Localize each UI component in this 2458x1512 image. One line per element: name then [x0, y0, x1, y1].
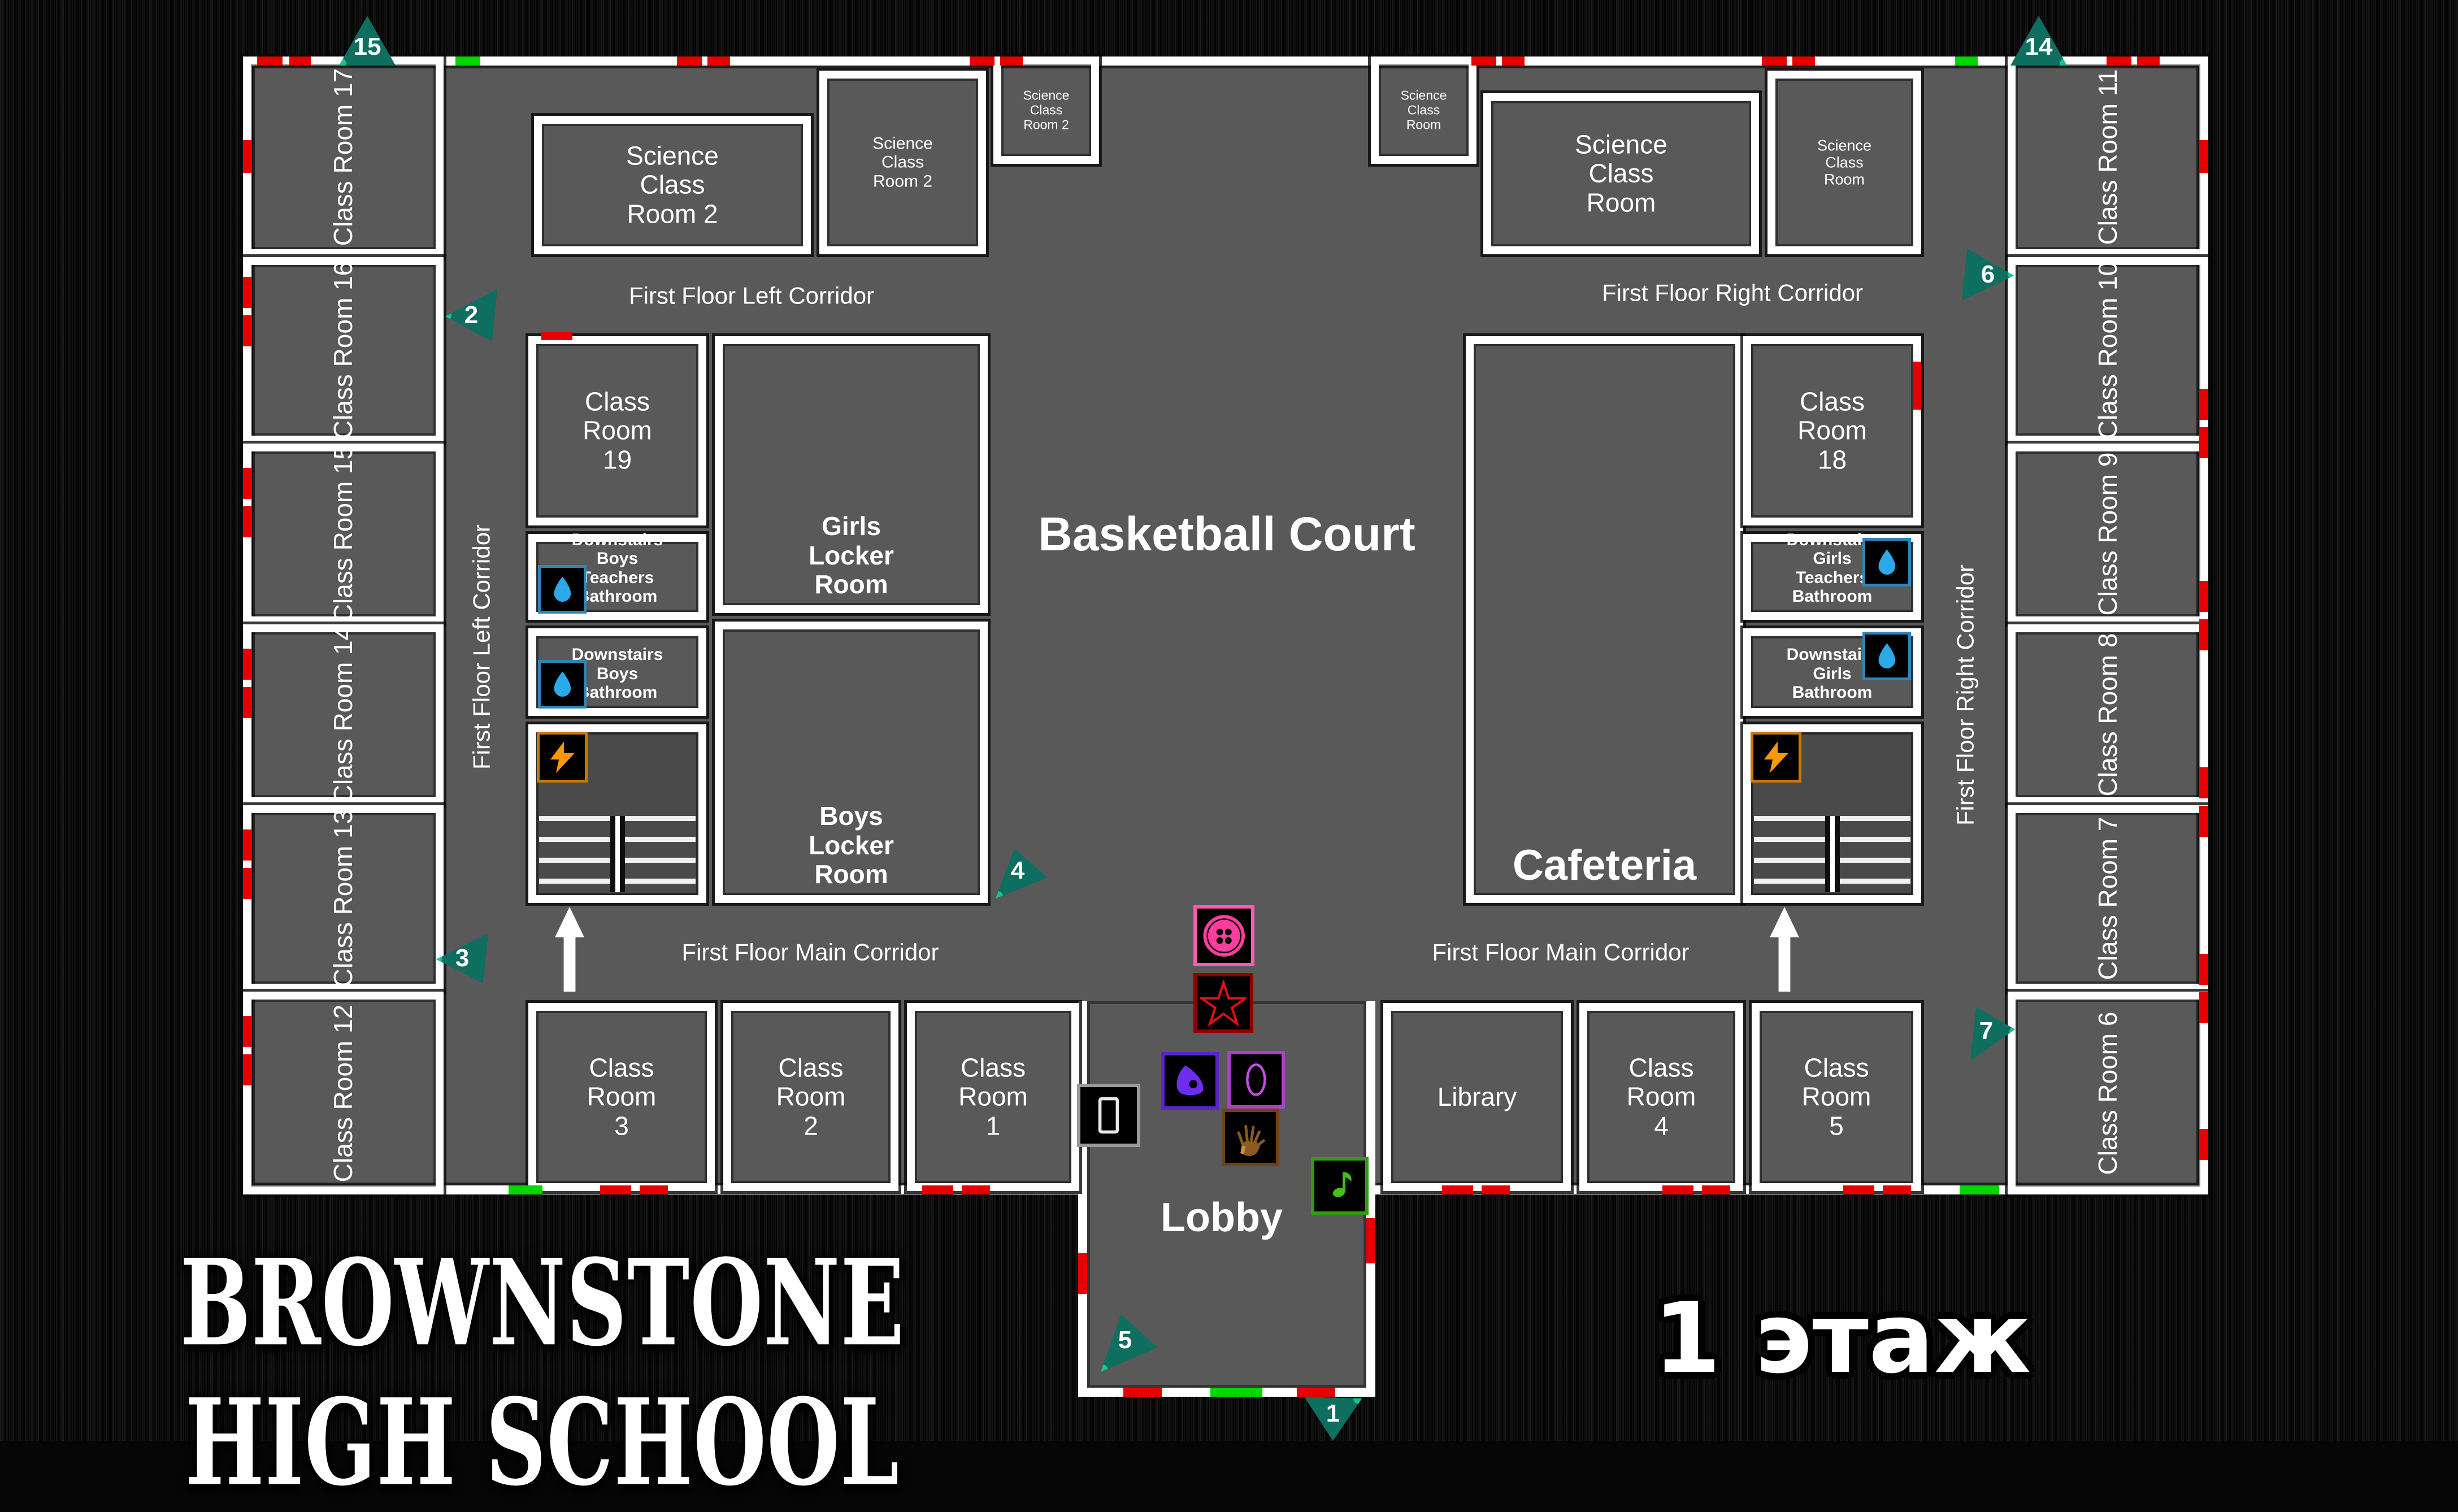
music-note-icon — [1311, 1157, 1369, 1215]
door-mark — [600, 1185, 631, 1194]
room-label: Class Room 10 — [2094, 262, 2123, 439]
room-science-class-room-2: Science Class Room 2 — [534, 116, 811, 254]
stair-treads — [539, 816, 696, 892]
stair-rail — [610, 816, 625, 892]
room-class-room-6: Class Room 6 — [2008, 992, 2208, 1194]
room-cafeteria: Cafeteria — [1466, 336, 1743, 903]
door-mark — [1702, 1185, 1730, 1194]
floor-plan: Class Room 17Class Room 16Class Room 15C… — [0, 0, 2458, 1441]
room-label: Class Room 16 — [329, 262, 358, 439]
room-label: Class Room 3 — [579, 1053, 665, 1141]
marker-number: 6 — [1981, 260, 1995, 289]
room-label: Science Class Room 2 — [1023, 88, 1070, 132]
door-mark — [289, 57, 311, 66]
door-mark — [1442, 1185, 1473, 1194]
room-class-room-19: Class Room 19 — [528, 336, 706, 525]
room-class-room-2: Class Room 2 — [723, 1003, 898, 1191]
door-mark — [243, 506, 252, 537]
door-mark — [1502, 57, 1525, 66]
game-title: BROWNSTONE HIGH SCHOOL — [34, 1233, 1051, 1512]
door-mark — [2107, 57, 2131, 66]
room-label: Class Room 15 — [329, 445, 358, 623]
room-label: Class Room 14 — [329, 626, 358, 803]
door-mark — [1123, 1388, 1162, 1397]
water-drop-icon — [538, 565, 587, 614]
marker-number: 15 — [354, 20, 381, 61]
room-class-room-11: Class Room 11 — [2008, 57, 2208, 257]
corridor-label: First Floor Main Corridor — [1432, 939, 1689, 965]
marker-number: 1 — [1326, 1400, 1340, 1438]
room-class-room-5: Class Room 5 — [1752, 1003, 1921, 1191]
door-mark — [970, 57, 995, 66]
room-label: Boys Locker Room — [787, 802, 916, 889]
planchette-icon — [1161, 1052, 1219, 1110]
door-mark — [2199, 992, 2208, 1023]
pink-button-icon — [1193, 905, 1254, 966]
marker-number: 14 — [2025, 20, 2053, 61]
door-mark — [2199, 140, 2208, 173]
door-mark — [1482, 1185, 1510, 1194]
door-mark — [541, 332, 572, 340]
door-mark — [1210, 1388, 1262, 1397]
door-mark — [707, 57, 730, 66]
floor-number-label: 1 этаж — [1633, 1281, 2051, 1395]
water-drop-icon — [1862, 632, 1911, 680]
door-mark — [243, 315, 252, 346]
door-mark — [1883, 1185, 1911, 1194]
room-label: Cafeteria — [1513, 841, 1696, 889]
room-science-class-room-store: Science Class Room — [1371, 57, 1476, 164]
room-label: Class Room 6 — [2094, 1011, 2123, 1175]
door-mark — [2199, 806, 2208, 837]
room-label: Science Class Room 2 — [607, 141, 738, 229]
corridor-label: First Floor Right Corridor — [1602, 279, 1863, 306]
door-mark — [243, 140, 252, 173]
room-label: Science Class Room — [1401, 88, 1447, 132]
room-label: Class Room 11 — [2094, 69, 2123, 245]
pentagram-icon — [1193, 973, 1253, 1033]
room-label: Class Room 9 — [2094, 453, 2123, 616]
door-mark — [455, 57, 480, 66]
room-label: Class Room 18 — [1792, 387, 1873, 475]
room-class-room-7: Class Room 7 — [2008, 805, 2208, 992]
room-label: Class Room 17 — [329, 68, 358, 245]
door-mark — [1297, 1388, 1335, 1397]
door-mark — [509, 1185, 542, 1194]
room-label: Class Room 4 — [1625, 1053, 1699, 1141]
room-class-room-4: Class Room 4 — [1579, 1003, 1743, 1191]
room-class-room-17: Class Room 17 — [243, 57, 444, 257]
door-mark — [2199, 389, 2208, 420]
room-label: Class Room 19 — [577, 387, 658, 475]
water-drop-icon — [538, 660, 587, 709]
door-mark — [1913, 362, 1921, 410]
door-mark — [1762, 57, 1787, 66]
door-mark — [1000, 57, 1023, 66]
water-drop-icon — [1862, 538, 1911, 586]
door-mark — [1471, 57, 1496, 66]
room-science-class-room-2-store: Science Class Room 2 — [993, 57, 1099, 164]
stair-treads — [1754, 816, 1910, 892]
door-mark — [962, 1185, 990, 1194]
door-mark — [1843, 1185, 1874, 1194]
lightning-icon — [1751, 732, 1801, 783]
door-mark — [2199, 581, 2208, 612]
room-class-room-8: Class Room 8 — [2008, 624, 2208, 805]
room-class-room-10: Class Room 10 — [2008, 257, 2208, 444]
marker-number: 5 — [1118, 1326, 1140, 1360]
room-label: Class Room 13 — [329, 810, 358, 987]
room-class-room-12: Class Room 12 — [243, 992, 444, 1194]
door-mark — [243, 687, 252, 718]
door-mark — [257, 57, 283, 66]
door-mark — [243, 1016, 252, 1047]
corridor-label: First Floor Left Corridor — [629, 282, 874, 309]
door-mark — [243, 868, 252, 899]
corridor-label: First Floor Right Corridor — [1952, 564, 1978, 825]
room-science-class-room-2-annex: Science Class Room 2 — [819, 71, 986, 254]
room-label: Library — [1438, 1083, 1517, 1112]
room-class-room-9: Class Room 9 — [2008, 444, 2208, 624]
door-mark — [243, 829, 252, 861]
room-class-room-14: Class Room 14 — [243, 624, 444, 805]
door-mark — [243, 1054, 252, 1085]
door-mark — [2199, 427, 2208, 458]
door-mark — [2199, 619, 2208, 650]
lightning-icon — [537, 732, 588, 783]
room-class-room-18: Class Room 18 — [1743, 336, 1921, 525]
door-mark — [243, 468, 252, 499]
door-mark — [1960, 1185, 1999, 1194]
hand-icon — [1222, 1109, 1279, 1166]
door-mark — [1662, 1185, 1693, 1194]
door-mark — [2199, 1129, 2208, 1160]
door-mark — [1366, 1218, 1375, 1263]
room-label: Science Class Room — [1810, 137, 1879, 188]
phone-icon — [1077, 1084, 1140, 1147]
oval-ring-icon — [1227, 1051, 1285, 1109]
door-mark — [1792, 57, 1815, 66]
corridor-label: First Floor Main Corridor — [681, 939, 939, 965]
room-label: Class Room 12 — [329, 1004, 358, 1181]
room-label: Science Class Room — [1556, 130, 1686, 218]
corridor-label: Lobby — [1161, 1195, 1283, 1435]
door-mark — [1955, 57, 1978, 66]
room-class-room-15: Class Room 15 — [243, 444, 444, 624]
door-mark — [2199, 954, 2208, 985]
room-class-room-3: Class Room 3 — [528, 1003, 715, 1191]
room-class-room-16: Class Room 16 — [243, 257, 444, 444]
room-label: Class Room 7 — [2094, 817, 2123, 980]
room-label: Class Room 2 — [771, 1053, 851, 1141]
room-label: Science Class Room 2 — [865, 134, 941, 191]
room-boys-locker-room: Boys Locker Room — [715, 622, 988, 903]
door-mark — [677, 57, 702, 66]
door-mark — [1078, 1253, 1087, 1294]
corridor-label: First Floor Left Corridor — [468, 524, 494, 770]
door-mark — [243, 277, 252, 308]
map-marker-15: 15 — [339, 16, 396, 66]
stair-rail — [1825, 816, 1840, 892]
room-class-room-13: Class Room 13 — [243, 805, 444, 992]
room-label: Class Room 5 — [1798, 1053, 1875, 1141]
door-mark — [2137, 57, 2160, 66]
room-girls-locker-room: Girls Locker Room — [715, 336, 988, 613]
door-mark — [243, 649, 252, 680]
marker-number: 2 — [464, 301, 478, 329]
door-mark — [922, 1185, 953, 1194]
door-mark — [640, 1185, 668, 1194]
room-label: Class Room 1 — [954, 1053, 1032, 1141]
room-label: Girls Locker Room — [787, 512, 916, 599]
room-science-class-room-annex: Science Class Room — [1767, 71, 1921, 254]
room-science-class-room: Science Class Room — [1483, 93, 1759, 254]
door-mark — [2199, 767, 2208, 798]
map-marker-14: 14 — [2010, 16, 2067, 66]
room-label: Class Room 8 — [2094, 633, 2123, 797]
